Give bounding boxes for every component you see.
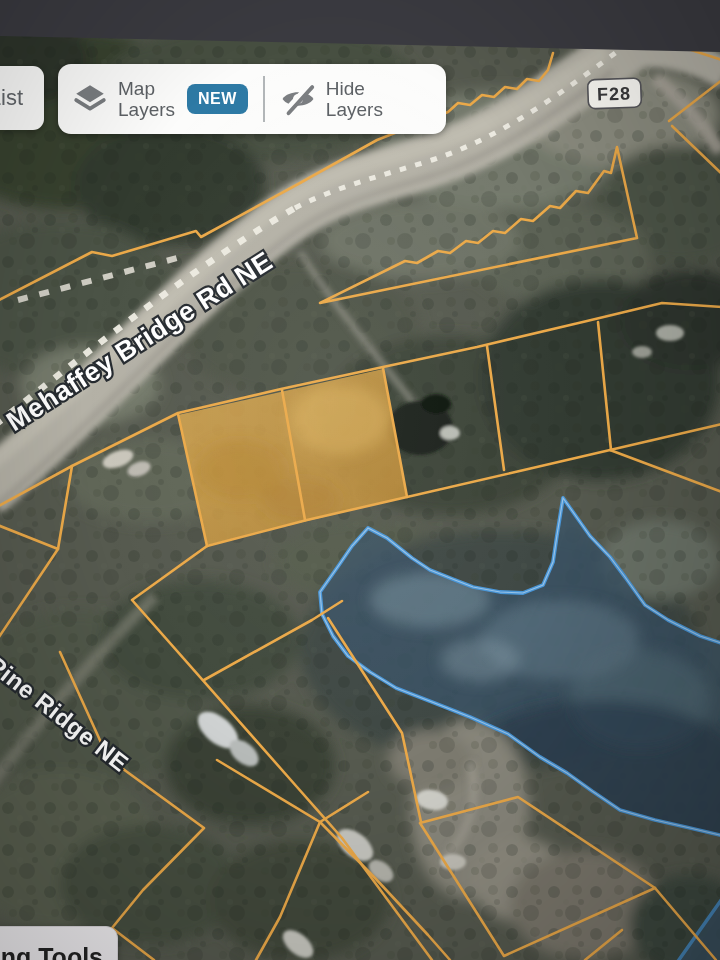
toolbar-divider (263, 76, 265, 122)
eye-off-icon (278, 82, 318, 116)
map-layers-label-line1: Map (118, 78, 155, 99)
tools-button[interactable]: ng Tools (0, 926, 118, 960)
screenshot-stage: Mehaffey Bridge Rd NE Pine Ridge NE F28 … (0, 0, 720, 960)
hide-layers-button[interactable]: Hide Layers (326, 78, 383, 120)
new-badge: NEW (187, 84, 248, 114)
list-button[interactable]: List (0, 66, 44, 130)
hide-layers-label-line1: Hide (326, 78, 365, 99)
hide-layers-label-line2: Layers (326, 99, 383, 120)
layers-toolbar: Map Layers NEW Hide Layers (58, 64, 446, 134)
layers-icon (70, 82, 110, 116)
map-layers-button[interactable]: Map Layers (118, 78, 175, 120)
map-layers-label-line2: Layers (118, 99, 175, 120)
route-shield: F28 (588, 78, 642, 109)
map-canvas[interactable]: Mehaffey Bridge Rd NE Pine Ridge NE F28 (0, 0, 720, 960)
route-shield-label: F28 (597, 83, 632, 104)
